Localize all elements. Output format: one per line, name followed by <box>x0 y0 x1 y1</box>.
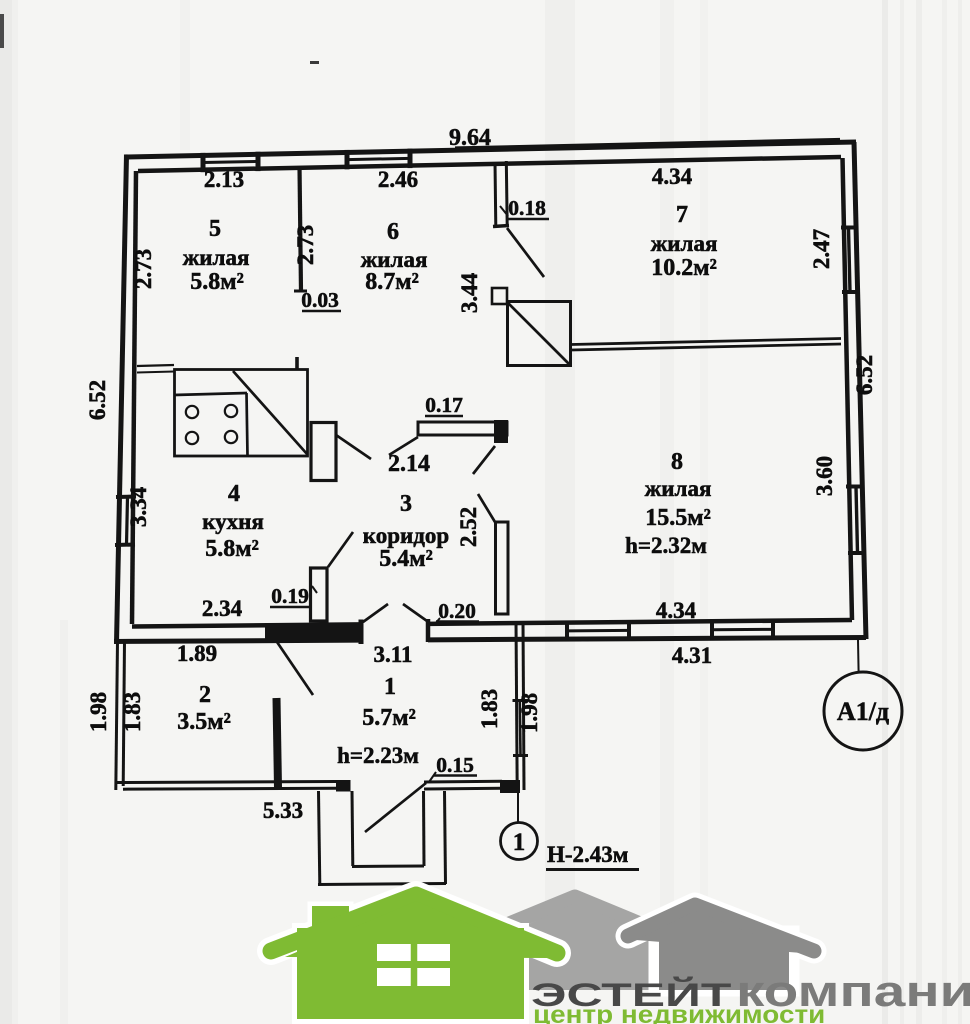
svg-text:6.52: 6.52 <box>85 380 110 420</box>
svg-text:3.44: 3.44 <box>457 272 482 313</box>
svg-text:3.60: 3.60 <box>812 456 837 496</box>
svg-text:0.19: 0.19 <box>271 584 309 608</box>
svg-text:3.34: 3.34 <box>126 486 151 527</box>
svg-text:9.64: 9.64 <box>449 125 491 151</box>
svg-text:коридор: коридор <box>363 523 449 548</box>
svg-text:3.5м²: 3.5м² <box>177 709 231 735</box>
svg-text:6.52: 6.52 <box>852 355 877 395</box>
svg-text:4.31: 4.31 <box>672 643 712 668</box>
svg-text:жилая: жилая <box>651 231 718 256</box>
svg-text:5.8м²: 5.8м² <box>205 536 259 562</box>
svg-text:2.14: 2.14 <box>388 451 430 477</box>
svg-text:кухня: кухня <box>202 509 264 534</box>
svg-text:1.83: 1.83 <box>477 689 502 729</box>
svg-text:7: 7 <box>676 202 688 228</box>
svg-text:6: 6 <box>387 219 399 245</box>
svg-text:0.03: 0.03 <box>301 288 339 312</box>
svg-text:h=2.23м: h=2.23м <box>337 743 419 768</box>
svg-text:1.89: 1.89 <box>177 641 217 666</box>
svg-text:1.98: 1.98 <box>86 692 111 732</box>
svg-text:1: 1 <box>513 829 526 856</box>
svg-text:2.46: 2.46 <box>378 167 418 192</box>
svg-text:2.47: 2.47 <box>809 229 834 269</box>
svg-text:0.17: 0.17 <box>425 393 463 417</box>
svg-text:2.73: 2.73 <box>131 249 156 289</box>
svg-text:0.18: 0.18 <box>508 196 546 220</box>
svg-text:3: 3 <box>400 491 412 517</box>
svg-text:жилая: жилая <box>183 245 250 270</box>
svg-text:8.7м²: 8.7м² <box>365 269 419 295</box>
svg-text:А1/д: А1/д <box>837 697 889 726</box>
svg-text:3.11: 3.11 <box>374 642 413 667</box>
svg-text:15.5м²: 15.5м² <box>645 505 711 531</box>
svg-text:2.34: 2.34 <box>202 596 243 621</box>
svg-text:4.34: 4.34 <box>656 598 697 623</box>
svg-text:1: 1 <box>384 674 396 700</box>
svg-text:0.15: 0.15 <box>436 753 474 777</box>
svg-text:5.8м²: 5.8м² <box>190 269 244 295</box>
svg-text:2.52: 2.52 <box>456 507 481 547</box>
svg-text:центр недвижимости: центр недвижимости <box>533 1000 825 1024</box>
svg-text:1.83: 1.83 <box>120 692 145 732</box>
svg-text:8: 8 <box>671 449 683 475</box>
svg-text:4.34: 4.34 <box>652 164 693 189</box>
svg-text:1.98: 1.98 <box>517 693 542 733</box>
svg-text:0.20: 0.20 <box>438 599 476 623</box>
svg-text:10.2м²: 10.2м² <box>651 255 717 281</box>
svg-text:5.33: 5.33 <box>263 798 303 823</box>
svg-text:4: 4 <box>228 481 240 507</box>
svg-text:жилая: жилая <box>645 476 712 501</box>
svg-text:2.13: 2.13 <box>204 167 244 192</box>
svg-text:2: 2 <box>199 682 211 708</box>
svg-text:2.73: 2.73 <box>293 225 318 265</box>
svg-text:Н-2.43м: Н-2.43м <box>547 842 628 867</box>
svg-text:h=2.32м: h=2.32м <box>625 533 707 558</box>
svg-text:5.7м²: 5.7м² <box>362 705 416 731</box>
svg-text:5.4м²: 5.4м² <box>379 546 433 572</box>
svg-text:5: 5 <box>209 216 221 242</box>
